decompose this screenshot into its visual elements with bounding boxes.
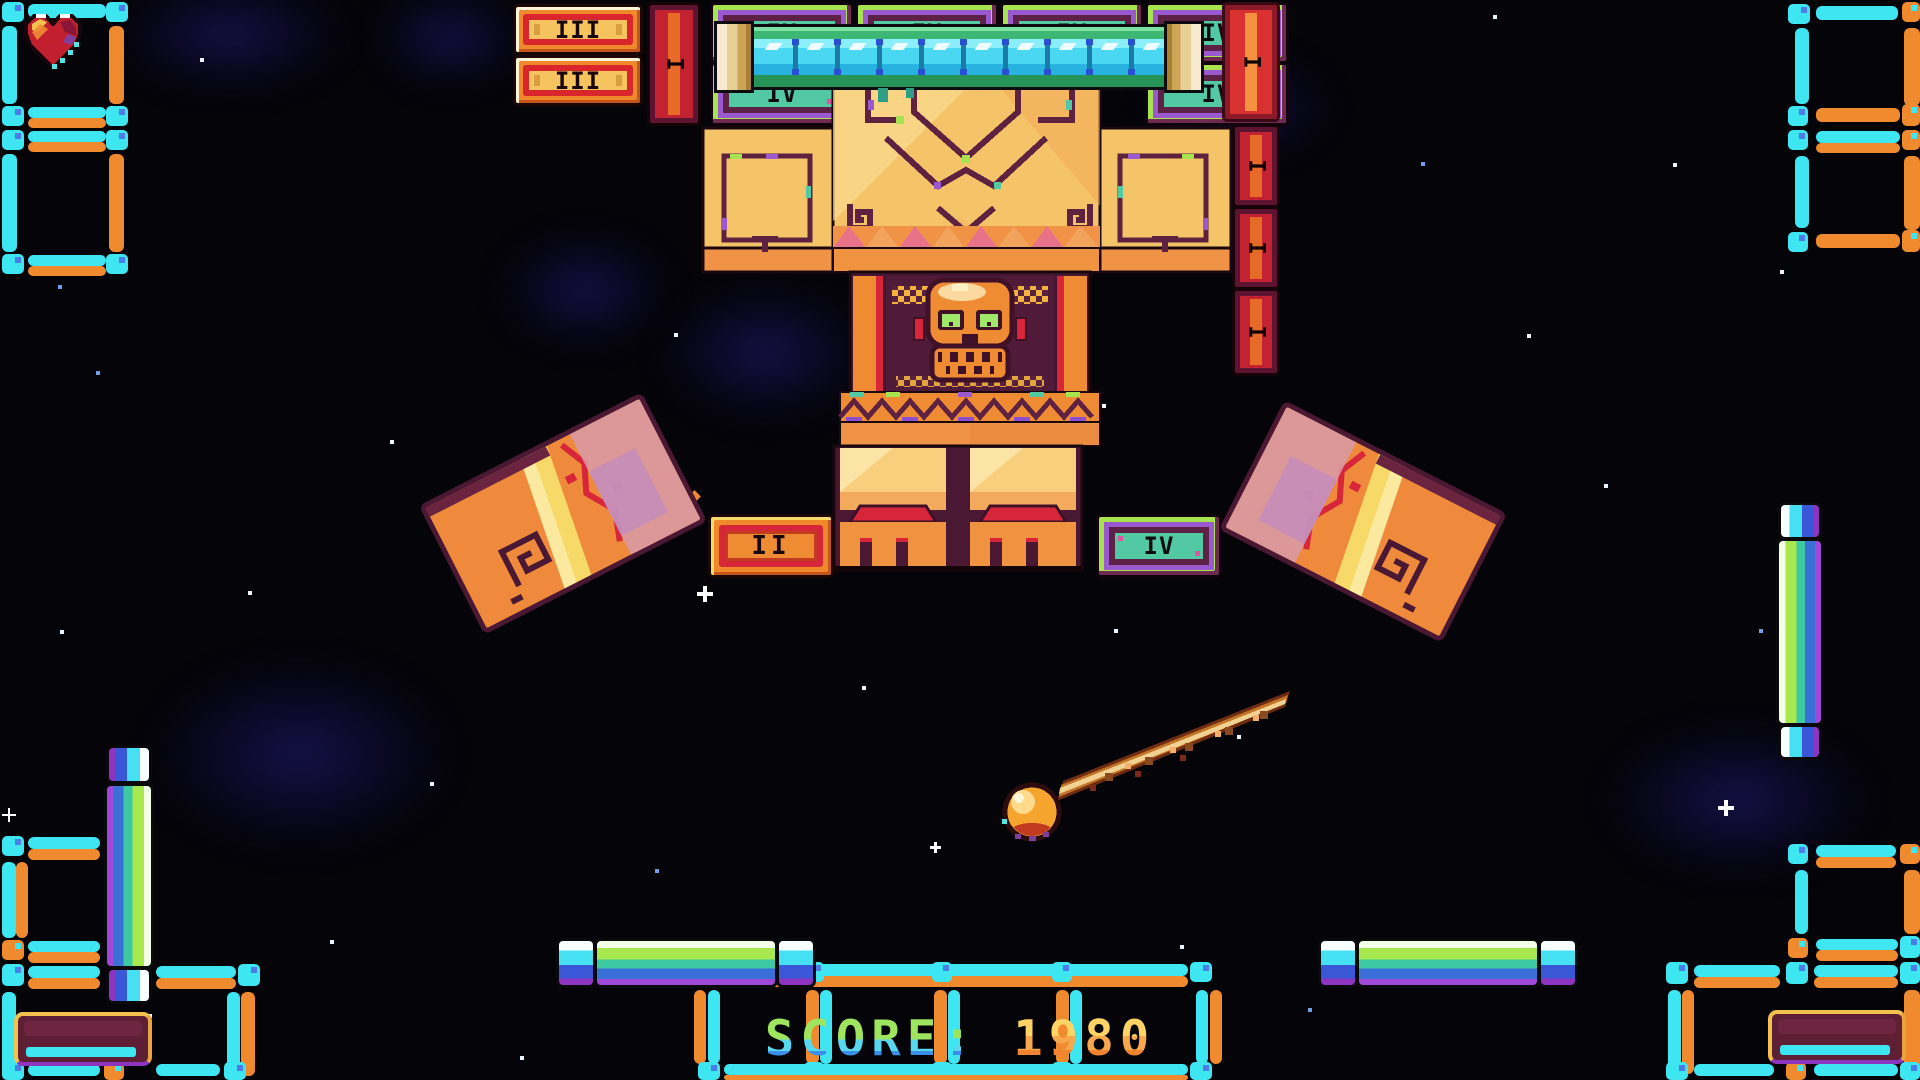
nebula (150, 660, 450, 850)
tube-rim (751, 27, 1167, 39)
frame-node (1786, 1062, 1806, 1080)
frame-bar (156, 978, 236, 989)
pill-cap (1778, 502, 1822, 540)
frame-node (1900, 1062, 1920, 1080)
frame-bar (1816, 845, 1896, 857)
frame-bar (2, 154, 17, 252)
nebula (500, 235, 670, 345)
frame-bar (28, 941, 100, 952)
sparkle-icon (2, 808, 16, 822)
pill-capsule-right (1776, 538, 1824, 726)
glass-shine (933, 43, 951, 50)
energy-tube (718, 24, 1200, 90)
ball (1002, 785, 1059, 841)
glass-shine (975, 43, 993, 50)
frame-node (106, 130, 128, 150)
score-readout: SCORE: 1980 (0, 1014, 1920, 1063)
heart-outline (74, 42, 79, 47)
glass-shine (1143, 43, 1161, 50)
temple-central-body (833, 88, 1100, 272)
slab-body (1219, 400, 1508, 643)
frame-node (932, 962, 952, 982)
heart-outline (52, 64, 57, 69)
star (1673, 163, 1677, 167)
frame-node (1666, 1062, 1688, 1080)
sparkle-icon (1718, 800, 1734, 816)
star (674, 333, 678, 337)
frame-bar (28, 266, 106, 276)
star (862, 686, 866, 690)
pill-cap (1318, 938, 1358, 988)
frame-node (1902, 104, 1920, 126)
frame-bar (1816, 143, 1900, 153)
tube-cap-left (714, 21, 754, 93)
frame-bar (1814, 965, 1898, 977)
frame-node (106, 254, 128, 274)
frame-bar (28, 966, 100, 978)
frame-node (1788, 4, 1810, 24)
frame-node (106, 106, 128, 126)
energy-tube-body (748, 24, 1170, 90)
pill-cap (1778, 724, 1822, 760)
frame-node (106, 2, 128, 22)
brick-numeral: I (1244, 241, 1269, 254)
frame-bar (28, 952, 100, 963)
temple-zigzag-band (840, 392, 1100, 422)
frame-node (1902, 130, 1920, 150)
frame-bar (28, 107, 106, 118)
brick-iii-top: III (513, 4, 643, 55)
brick-iv-lower: IV (1096, 514, 1222, 578)
sparkle-icon (930, 842, 941, 853)
frame-node (2, 836, 24, 856)
frame-node (1788, 106, 1808, 126)
heart-outline (60, 58, 65, 63)
tube-drip (878, 88, 888, 102)
star (1759, 629, 1763, 633)
frame-node (1666, 962, 1688, 984)
frame-bar (28, 837, 100, 849)
brick-panel: III (529, 71, 627, 90)
frame-bar (1795, 156, 1809, 228)
brick-panel: II (725, 531, 817, 561)
frame-node (2, 254, 24, 274)
temple-side-block-right (1100, 128, 1231, 272)
nebula (375, 0, 525, 85)
star (1493, 15, 1497, 19)
frame-bar (1816, 950, 1898, 961)
pill-cap (106, 967, 152, 1004)
frame-bar (2, 26, 17, 104)
temple-side-block-left (703, 128, 833, 272)
temple-idol (700, 86, 1240, 576)
frame-node (1788, 130, 1808, 150)
star (1604, 484, 1608, 488)
star (1527, 334, 1531, 338)
frame-bar (28, 118, 106, 128)
star (1780, 270, 1784, 274)
heart-outline (36, 14, 46, 18)
frame-bar (1816, 857, 1896, 868)
tube-segment-divider (835, 39, 840, 75)
frame-bar (1814, 1064, 1898, 1076)
glass-shine (807, 43, 825, 50)
glass-shine (1101, 43, 1119, 50)
brick-numeral: I (662, 57, 687, 70)
frame-node (1900, 962, 1920, 984)
frame-node (2, 940, 24, 960)
frame-node (224, 1062, 246, 1080)
pill-capsule-bottom-left (594, 938, 778, 988)
temple-band-shade (970, 424, 1098, 444)
tube-segment-divider (1045, 39, 1050, 75)
frame-bar (1816, 6, 1898, 20)
frame-bar (28, 849, 100, 860)
star (200, 58, 204, 62)
frame-node (2, 2, 24, 22)
brick-panel: III (529, 20, 627, 39)
brick-numeral: I (1244, 159, 1269, 172)
frame-bar (28, 255, 106, 266)
star (1180, 945, 1184, 949)
game-area[interactable]: III III I I I I I IV IV IV IV IV IV (0, 0, 1920, 1080)
frame-bar (1816, 234, 1900, 248)
frame-bar (1904, 870, 1920, 934)
pill-cap (776, 938, 816, 988)
glass-shine (1017, 43, 1035, 50)
frame-node (1788, 938, 1808, 958)
frame-node (698, 1062, 720, 1080)
star (390, 440, 394, 444)
frame-node (1900, 844, 1920, 864)
frame-node (1902, 2, 1920, 22)
frame-node (1786, 962, 1808, 984)
frame-bar (1795, 28, 1809, 104)
ball-trail (1057, 691, 1290, 801)
brick-iii-bottom: III (513, 55, 643, 106)
skull-icon (914, 280, 1026, 380)
heart-outline (68, 50, 73, 55)
star (430, 782, 434, 786)
heart-outline (60, 14, 70, 18)
pill-capsule-left (104, 783, 154, 969)
tube-glass (751, 39, 1167, 75)
tube-segment-divider (793, 39, 798, 75)
frame-bar (1814, 977, 1898, 988)
brick-numeral: III (555, 16, 601, 44)
frame-node (1902, 230, 1920, 252)
pill-cap (1538, 938, 1578, 988)
star (1114, 629, 1118, 633)
frame-bar (1694, 965, 1780, 977)
star (96, 371, 100, 375)
frame-bar (28, 978, 100, 989)
star (330, 940, 334, 944)
temple-leg-right (970, 448, 1076, 570)
glass-shine (1059, 43, 1077, 50)
frame-bar (1904, 28, 1920, 106)
tube-segment-divider (1129, 39, 1134, 75)
tube-segment-divider (919, 39, 924, 75)
score-label: SCORE: (765, 1010, 978, 1067)
pill-capsule-bottom-right (1356, 938, 1540, 988)
frame-bar (2, 862, 16, 938)
frame-bar (1816, 939, 1898, 950)
star (58, 285, 62, 289)
temple-legs (834, 446, 1082, 572)
sparkle-icon (697, 586, 713, 602)
frame-node (1190, 962, 1212, 982)
frame-bar (1694, 1064, 1774, 1076)
frame-node (238, 964, 260, 986)
frame-node (1190, 1062, 1212, 1080)
tube-segment-divider (877, 39, 882, 75)
frame-bar (28, 131, 106, 142)
frame-bar (16, 862, 28, 938)
pill-cap (106, 745, 152, 784)
brick-numeral: IV (1144, 532, 1175, 560)
frame-bar (724, 1075, 1188, 1080)
frame-node (2, 964, 24, 986)
temple-leg-left (840, 448, 946, 570)
frame-node (2, 106, 24, 126)
brick-panel: IV (1115, 533, 1203, 559)
star (248, 591, 252, 595)
temple-triangle-band (833, 226, 1100, 272)
heart-icon (24, 12, 84, 74)
nebula (115, 0, 345, 90)
tilted-slab-left (419, 392, 708, 635)
glass-shine (849, 43, 867, 50)
score-value: 1980 (1013, 1010, 1155, 1067)
frame-bar (1816, 131, 1900, 143)
brick-numeral: III (555, 67, 601, 95)
pill-cap (556, 938, 596, 988)
frame-node (1900, 936, 1920, 958)
frame-node (2, 130, 24, 150)
frame-bar (156, 1064, 220, 1076)
frame-bar (1694, 977, 1780, 988)
brick-ii: II (708, 514, 834, 578)
star (60, 630, 64, 634)
brick-numeral: I (1244, 325, 1269, 338)
frame-bar (1816, 108, 1900, 122)
frame-bar (156, 966, 236, 978)
frame-bar (1904, 156, 1920, 230)
tube-segment-divider (1003, 39, 1008, 75)
glass-shine (765, 43, 783, 50)
tilted-slab-right (1219, 400, 1508, 643)
brick-numeral: II (751, 531, 790, 561)
star (1308, 1008, 1312, 1012)
frame-bar (28, 142, 106, 152)
frame-node (1788, 232, 1808, 252)
frame-bar (109, 26, 124, 104)
frame-bar (1795, 870, 1808, 934)
frame-node (1788, 844, 1808, 864)
brick-numeral: I (1239, 55, 1264, 68)
tube-cap-right (1164, 21, 1204, 93)
tube-drip (906, 88, 914, 98)
glass-shine (891, 43, 909, 50)
ball-group (985, 655, 1315, 845)
tube-segment-divider (1087, 39, 1092, 75)
frame-bar (109, 154, 124, 252)
temple-skull-section (850, 272, 1090, 396)
tube-segment-divider (961, 39, 966, 75)
star (655, 869, 659, 873)
tube-rim (751, 75, 1167, 87)
frame-node (1052, 962, 1072, 982)
brick-i-vertical-left: I (647, 2, 701, 126)
slab-body (419, 392, 708, 635)
star (1421, 162, 1425, 166)
